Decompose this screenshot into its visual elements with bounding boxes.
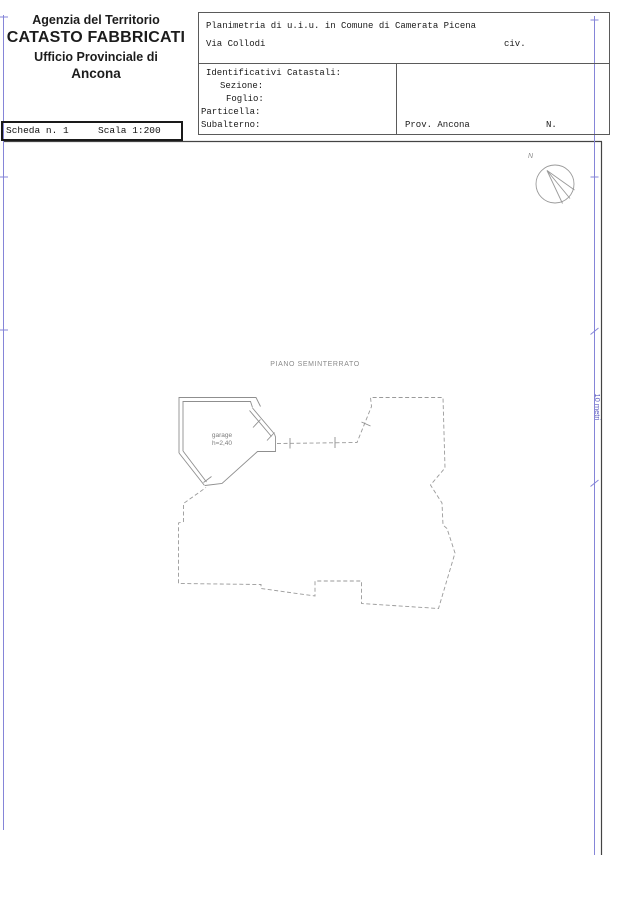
catasto-title: CATASTO FABBRICATI <box>0 29 192 47</box>
scheda-number: Scheda n. 1 <box>6 125 69 136</box>
civ-label: civ. <box>504 39 526 49</box>
field-subalterno: Subalterno: <box>201 120 260 130</box>
cadastral-form: Planimetria di u.i.u. in Comune di Camer… <box>198 12 610 135</box>
prov-label: Prov. Ancona <box>405 120 470 130</box>
sheet-frame <box>3 142 602 856</box>
scale-value: Scala 1:200 <box>98 125 161 136</box>
field-sezione: Sezione: <box>220 81 263 91</box>
street-value: Via Collodi <box>206 39 265 49</box>
field-foglio: Foglio: <box>226 94 264 104</box>
compass-north-label: N <box>528 153 533 160</box>
room-height: h=2,40 <box>192 440 252 448</box>
form-vertical-divider <box>396 63 397 134</box>
compass-icon <box>536 165 575 204</box>
building-outline-dashed <box>179 398 456 609</box>
planimetria-title: Planimetria di u.i.u. in Comune di Camer… <box>206 21 476 31</box>
scheda-box: Scheda n. 1 Scala 1:200 <box>1 121 183 141</box>
tick-marks <box>204 420 371 483</box>
identificativi-label: Identificativi Catastali: <box>206 68 341 78</box>
field-particella: Particella: <box>201 107 260 117</box>
scale-dimension-label: 10 metri <box>592 387 602 427</box>
form-horizontal-divider <box>199 63 609 64</box>
office-city: Ancona <box>0 66 192 81</box>
n-label: N. <box>546 120 557 130</box>
agency-name: Agenzia del Territorio <box>0 13 192 27</box>
garage-door <box>250 408 275 437</box>
agency-header: Agenzia del Territorio CATASTO FABBRICAT… <box>0 13 192 81</box>
office-line: Ufficio Provinciale di <box>0 50 192 64</box>
room-name: garage <box>192 432 252 440</box>
garage-room-label: garage h=2,40 <box>192 432 252 448</box>
floor-title: PIANO SEMINTERRATO <box>240 361 390 368</box>
